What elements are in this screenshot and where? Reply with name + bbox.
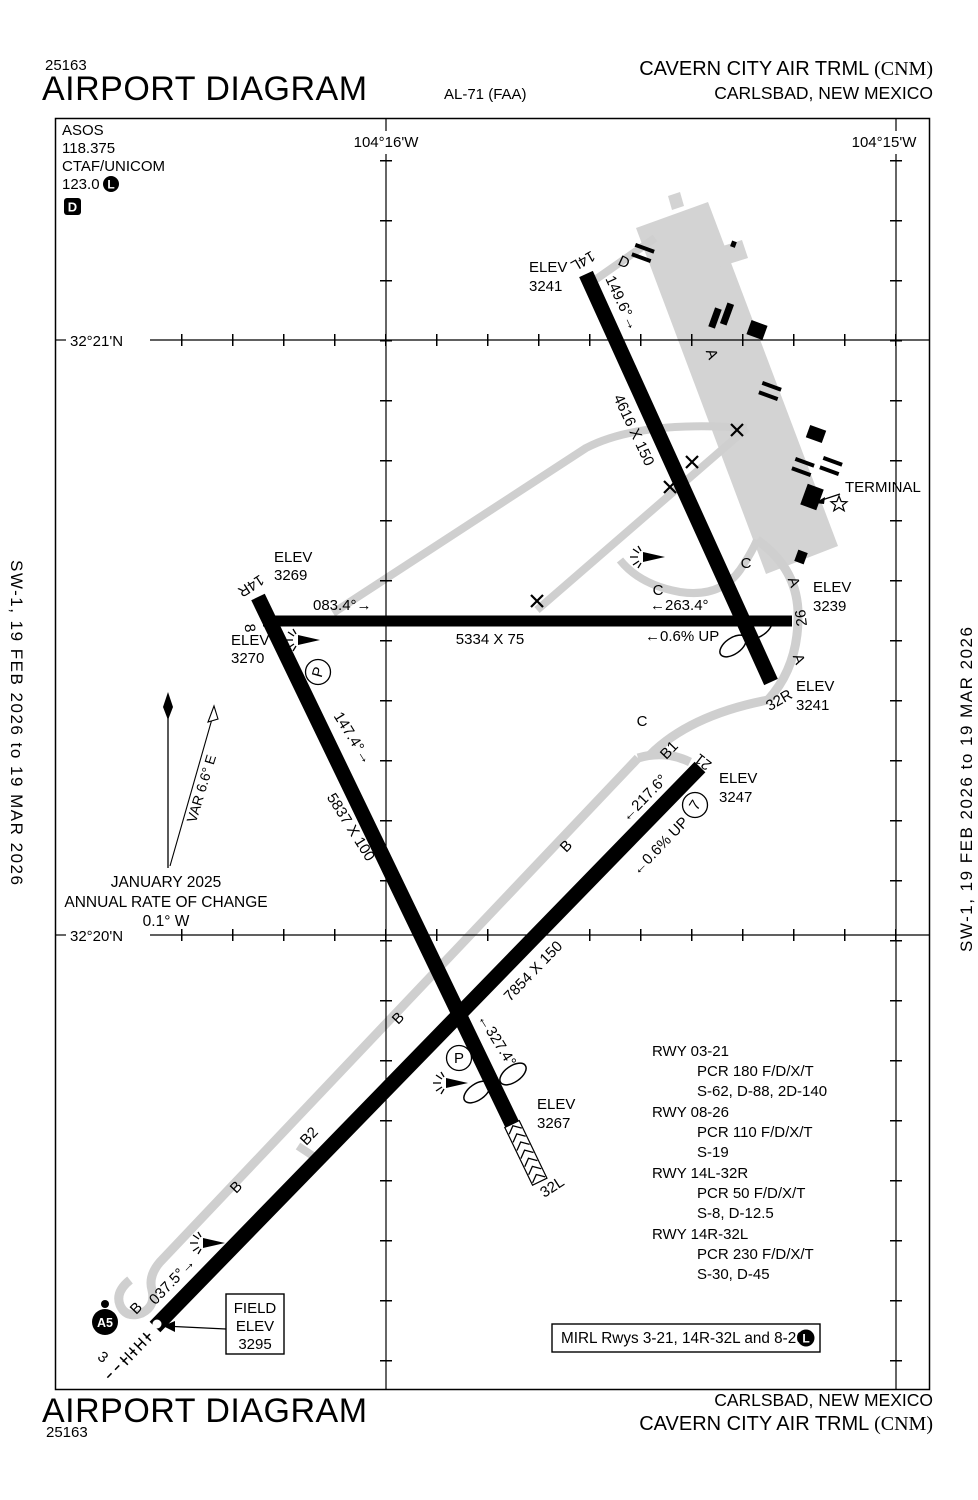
elev-value-21: 3247 xyxy=(719,789,752,806)
magnetic-north-arrowhead xyxy=(208,706,218,722)
rwy-row: RWY 14L-32R xyxy=(652,1165,748,1182)
rwy-strength: S-19 xyxy=(697,1144,729,1161)
diagram-canvas: 104°16'W 104°15'W 32°21'N 32°20'N xyxy=(0,0,978,1500)
runway-end-26: 26 xyxy=(792,609,811,628)
field-elev-line1: FIELD xyxy=(234,1300,277,1317)
terminal-callout: TERMINAL xyxy=(815,479,921,511)
taxiway-label-b: B xyxy=(389,1009,408,1028)
variation-month: JANUARY 2025 xyxy=(111,874,222,891)
taxiway-c xyxy=(620,540,757,593)
lighting-badge: L xyxy=(107,178,114,192)
heading-8: 083.4°→ xyxy=(313,597,372,614)
runway-end-14l: 14L xyxy=(568,247,598,274)
elev-label-32r: ELEV xyxy=(796,678,834,695)
taxiway-label-d: D xyxy=(615,252,632,272)
rwy-row: RWY 08-26 xyxy=(652,1104,729,1121)
parking-label: P xyxy=(454,1050,464,1067)
beacon-icon xyxy=(630,546,665,568)
field-elev-line2: ELEV xyxy=(236,1318,274,1335)
rwy-strength: S-62, D-88, 2D-140 xyxy=(697,1083,827,1100)
elev-value-8: 3270 xyxy=(231,650,264,667)
runway-end-dot xyxy=(153,1320,162,1329)
x-mark xyxy=(686,456,698,468)
rwy-strength: S-8, D-12.5 xyxy=(697,1205,774,1222)
elev-label-14l: ELEV xyxy=(529,259,567,276)
asos-label: ASOS xyxy=(62,122,104,139)
field-elev-arrow-line xyxy=(174,1327,226,1330)
dimensions-8-26: 5334 X 75 xyxy=(456,631,524,648)
rwy-pcr: PCR 230 F/D/X/T xyxy=(697,1246,814,1263)
mirl-text: MIRL Rwys 3-21, 14R-32L and 8-26 xyxy=(561,1330,805,1347)
variation-label: VAR 6.6° E xyxy=(183,753,219,825)
elev-value-32l: 3267 xyxy=(537,1115,570,1132)
lat-south-label: 32°20'N xyxy=(70,928,123,945)
apron-area xyxy=(636,192,838,574)
elev-label-26: ELEV xyxy=(813,579,851,596)
elev-value-14l: 3241 xyxy=(529,278,562,295)
elev-value-26: 3239 xyxy=(813,598,846,615)
ctaf-label: CTAF/UNICOM xyxy=(62,158,165,175)
taxiway-label-c: C xyxy=(741,555,752,572)
taxiway-label-c: C xyxy=(653,582,664,599)
variation-rate: 0.1° W xyxy=(143,913,190,930)
runway-data-block: RWY 03-21 PCR 180 F/D/X/T S-62, D-88, 2D… xyxy=(652,1043,827,1283)
rwy-strength: S-30, D-45 xyxy=(697,1266,770,1283)
elev-value-14r: 3269 xyxy=(274,567,307,584)
weather-badge: D xyxy=(68,200,77,215)
magnetic-variation: VAR 6.6° E JANUARY 2025 ANNUAL RATE OF C… xyxy=(64,692,267,930)
ctaf-frequency: 123.0 xyxy=(62,176,100,193)
rwy-row: RWY 03-21 xyxy=(652,1043,729,1060)
elev-label-8: ELEV xyxy=(231,632,269,649)
runway-end-3: 3 xyxy=(94,1348,111,1367)
mirl-lighting-badge: L xyxy=(802,1332,809,1346)
apron-stub xyxy=(668,192,684,210)
elev-value-32r: 3241 xyxy=(796,697,829,714)
rwy-row: RWY 14R-32L xyxy=(652,1226,748,1243)
obstruction-dot xyxy=(101,1300,109,1308)
star-icon xyxy=(831,496,847,511)
comm-frequencies: ASOS 118.375 CTAF/UNICOM 123.0 L D xyxy=(62,122,165,215)
terminal-label: TERMINAL xyxy=(845,479,921,496)
runway-14r-32l xyxy=(258,597,512,1124)
runway-end-32r: 32R xyxy=(763,686,795,715)
elev-label-21: ELEV xyxy=(719,770,757,787)
rwy-pcr: PCR 50 F/D/X/T xyxy=(697,1185,805,1202)
rwy-pcr: PCR 110 F/D/X/T xyxy=(697,1124,813,1141)
mirl-note: MIRL Rwys 3-21, 14R-32L and 8-26 L xyxy=(552,1324,820,1352)
lon-east-label: 104°15'W xyxy=(852,134,918,151)
elev-label-14r: ELEV xyxy=(274,549,312,566)
variation-note: ANNUAL RATE OF CHANGE xyxy=(64,894,267,911)
apron-bar-marks xyxy=(819,456,843,476)
closed-taxiway-2 xyxy=(333,426,747,613)
runway-3-21 xyxy=(155,767,700,1327)
taxiway-label-c: C xyxy=(637,713,648,730)
airport-diagram-page: 25163 AIRPORT DIAGRAM AL-71 (FAA) CAVERN… xyxy=(0,0,978,1500)
field-elev-line3: 3295 xyxy=(238,1336,271,1353)
true-north-arrowhead xyxy=(163,692,173,720)
rwy-pcr: PCR 180 F/D/X/T xyxy=(697,1063,814,1080)
building xyxy=(806,425,826,443)
asos-frequency: 118.375 xyxy=(62,140,115,157)
lon-west-label: 104°16'W xyxy=(354,134,420,151)
beacon-icon xyxy=(433,1072,468,1094)
slope-26: ←0.6% UP xyxy=(645,628,719,645)
lat-north-label: 32°21'N xyxy=(70,333,123,350)
heading-26: ←263.4° xyxy=(650,597,709,614)
a5-label: A5 xyxy=(97,1316,113,1330)
elev-label-32l: ELEV xyxy=(537,1096,575,1113)
taxiway-label-b: B xyxy=(557,837,576,856)
